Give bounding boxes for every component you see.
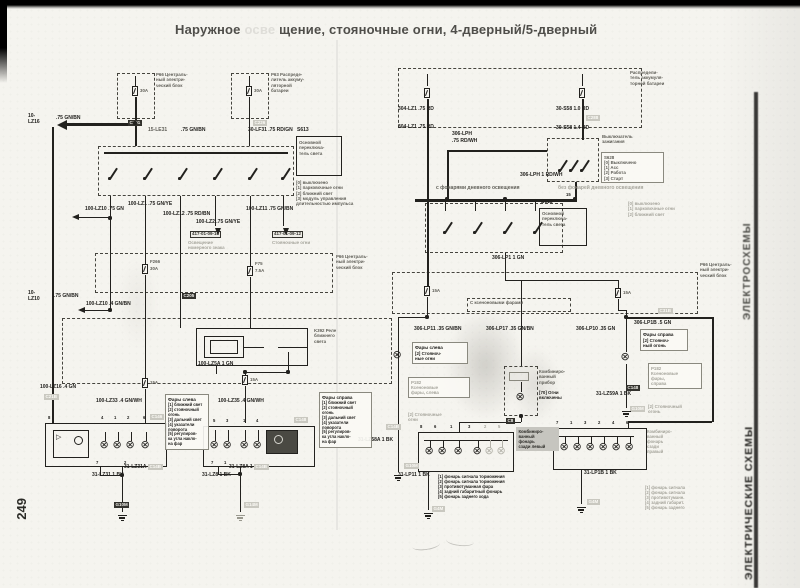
wire-label: с фонарями дневного освещения	[436, 186, 520, 191]
chapter-tab-label-top: ЭЛЕКТРОСХЕМЫ	[742, 140, 753, 320]
wire	[78, 217, 110, 218]
component-box	[210, 340, 238, 354]
wire-label: 100-LZ10 .75 GN	[85, 207, 124, 212]
wire-label: .75 GN/BN	[181, 128, 205, 133]
fuse-name-label: F75	[255, 262, 263, 266]
lamp-icon: ⊗	[223, 440, 232, 451]
wire-label: 306-LPH	[452, 132, 472, 137]
wire	[505, 272, 506, 280]
fuse-icon	[142, 378, 148, 388]
switch-icon	[139, 166, 151, 180]
legend-block: Фары слева[1] ближний свет[2] стояночный…	[165, 394, 209, 450]
wire-label: 6	[143, 416, 145, 420]
wire-label: 31-LP1B 1 BK	[584, 471, 617, 476]
wire-label: LZ10	[28, 297, 40, 302]
legend-block: Освещениеномерного знака	[188, 240, 244, 251]
switch-icon	[209, 166, 221, 180]
lamp-icon: ⊗	[454, 446, 463, 457]
legend-block: [2] Стояночныеогни	[408, 412, 464, 423]
fuse-amp-label: 15A	[250, 378, 258, 382]
wire	[427, 201, 429, 286]
lamp-icon: ⊗	[516, 392, 525, 403]
fuse-amp-label: 30A	[254, 89, 262, 93]
wire-label: 1	[243, 419, 245, 423]
legend-block: С ксеноновыми фарами	[470, 300, 570, 305]
fuse-name-label: F266	[150, 260, 160, 264]
junction-dot	[243, 370, 246, 373]
junction-dot	[238, 472, 241, 475]
wire-label: 100-LZ33 .4 GN/WH	[96, 399, 142, 404]
wire	[398, 317, 427, 318]
switch-icon	[499, 220, 511, 234]
wire-label: 5	[213, 419, 215, 423]
connector-tag: C31B	[658, 308, 673, 314]
wire	[250, 293, 251, 328]
wire	[245, 386, 246, 423]
legend-block: Комбиниро-ванныйфонарьсзадиправый	[647, 429, 695, 454]
junction-dot	[108, 308, 111, 311]
wire	[52, 127, 54, 376]
switch-icon	[174, 166, 186, 180]
wire-label: 100-LZ16 .4 GN	[40, 385, 76, 390]
wire	[618, 310, 626, 311]
wire	[447, 150, 449, 200]
wire	[216, 366, 217, 374]
arrow-icon	[215, 228, 221, 235]
wire-label: 100-LZ12 .75 RD/BN	[163, 212, 210, 217]
wire-label: 31-LP11 1 BK	[398, 473, 430, 478]
wire	[582, 74, 583, 86]
lamp-icon: ⊗	[425, 446, 434, 457]
legend-block: [70] Огнивключены	[539, 390, 591, 401]
lamp-icon: ⊗	[625, 442, 634, 453]
wire	[244, 347, 264, 348]
component-box	[509, 372, 529, 381]
legend-block: P182Ксеноновыефары, слева	[408, 377, 470, 398]
legend-block: P66 Централь-ный электри-ческий блок	[336, 254, 386, 270]
wire	[445, 199, 446, 211]
fuse-amp-label: 7.5A	[255, 269, 264, 273]
legend-block: Стояночные огни	[272, 240, 328, 245]
switch-icon	[469, 220, 481, 234]
junction-dot	[573, 197, 576, 200]
connector-tag: C205	[182, 293, 196, 299]
legend-block: Фары справа[1] ближний свет[2] стояночны…	[319, 392, 372, 448]
wire-label: 306-LPH 1 RD/WH	[520, 173, 563, 178]
ground-icon	[118, 514, 127, 521]
wire-label: 304-LZ1 .75 RD	[398, 125, 434, 130]
wire-label: S613	[541, 200, 553, 205]
component-box	[95, 253, 333, 293]
wire-label: 30-S58 1.4 RD	[556, 126, 589, 131]
wire	[278, 347, 308, 348]
wire	[447, 150, 547, 152]
wire	[521, 314, 522, 366]
wire-label: 3	[468, 425, 470, 429]
fuse-amp-label: 15A	[432, 289, 440, 293]
connector-tag: C226	[253, 120, 267, 126]
fuse-icon	[424, 286, 430, 296]
wire	[250, 277, 251, 293]
wire-label: 2	[127, 416, 129, 420]
ground-icon	[394, 474, 403, 481]
switch-icon	[244, 166, 256, 180]
legend-block: [0] выключено[1] парковочные огни[2] бли…	[296, 180, 372, 206]
wire-label: 306-LP1B .5 GN	[634, 321, 671, 326]
connector-tag: C14B	[386, 424, 401, 430]
wire	[626, 317, 712, 319]
wire-label: ▷	[56, 434, 61, 441]
wire-label: 100-LZ2 .75 GN/YE	[196, 220, 240, 225]
motor-icon	[274, 435, 283, 444]
wire-label: 6	[626, 421, 628, 425]
connector-tag: G10M	[630, 406, 645, 412]
chapter-tab-label-bottom: ЭЛЕКТРИЧЕСКИЕ СХЕМЫ	[743, 352, 755, 580]
manual-page-scan: Наружное осве щение, стояночные огни, 4-…	[0, 0, 800, 588]
connector-tag: C14B	[148, 464, 163, 470]
wire-label: 4	[612, 421, 614, 425]
lamp-icon: ⊗	[240, 440, 249, 451]
wire	[427, 74, 428, 86]
ground-icon	[424, 512, 433, 519]
legend-block: K392 Релеближнегосвета	[314, 328, 366, 344]
lamp-icon: ⊗	[560, 442, 569, 453]
wire	[535, 199, 536, 211]
legend-block: [2] Стояночныйогонь	[648, 404, 696, 415]
wire-label: .75 RD/WH	[452, 139, 477, 144]
legend-block: Основнойпереключа-тель света	[542, 211, 586, 227]
motor-icon	[74, 436, 83, 445]
wire-label: 3	[584, 421, 586, 425]
lamp-icon: ⊗	[473, 446, 482, 457]
lamp-icon: ⊗	[113, 440, 122, 451]
lamp-icon: ⊗	[393, 350, 402, 361]
connector-tag: G10M	[404, 463, 419, 469]
wire-label: 306-LP1 1 GN	[492, 256, 524, 261]
wire-label: 31-LZ59A 1 BK	[596, 392, 631, 397]
wire-label: 4	[256, 419, 258, 423]
wire	[505, 199, 506, 211]
wire-label: 100-LZ35 .4 GN/WH	[218, 399, 264, 404]
legend-block: S628[0] Выключено[1] Acc[2] Работа[3] Ст…	[601, 152, 664, 183]
lamp-icon: ⊗	[141, 440, 150, 451]
wire-label: 2	[598, 421, 600, 425]
connector-tag: C21B	[44, 394, 59, 400]
page-number: 249	[14, 498, 29, 520]
legend-block: Основнойпереключа-тель света	[299, 140, 341, 156]
lamp-icon: ⊗	[210, 440, 219, 451]
lamp-icon: ⊗	[612, 442, 621, 453]
switch-icon	[439, 220, 451, 234]
fuse-icon	[579, 88, 585, 98]
wire-label: 304-LZ1 .75 RD	[398, 107, 434, 112]
component-box	[231, 73, 269, 119]
wire-label: 306-LP17 .35 GN/BN	[486, 327, 534, 332]
wire	[180, 196, 181, 253]
wire	[110, 253, 111, 293]
legend-block: P182Ксеноновыефары,справа	[648, 363, 702, 389]
arrow-icon	[283, 228, 289, 235]
arrow-icon	[78, 307, 85, 313]
ground-icon	[236, 514, 245, 521]
wire-label: 4	[101, 416, 103, 420]
lamp-icon: ⊗	[621, 352, 630, 363]
wire-label: 8	[420, 425, 422, 429]
fuse-icon	[424, 88, 430, 98]
connector-tag: C14B	[254, 464, 269, 470]
wire	[145, 253, 146, 264]
switch-icon	[104, 166, 116, 180]
wire-label: 7	[96, 461, 98, 465]
wire	[180, 253, 181, 293]
junction-dot	[120, 473, 123, 476]
wire	[135, 76, 136, 86]
legend-block: Фары справа[2] Стояноч-ный огонь	[640, 329, 688, 351]
wire-label: 30-LF31 .75 RD/GN	[248, 128, 293, 133]
wire-label: 30-S58 1.0 RD	[556, 107, 589, 112]
wire-label: 100-LZ10 .4 GN/BN	[86, 302, 131, 307]
junction-dot	[624, 315, 627, 318]
wire	[618, 299, 619, 310]
wire-label: 306-LP10 .35 GN	[576, 327, 615, 332]
wire-label: 5	[498, 425, 500, 429]
wire	[618, 280, 619, 288]
wire	[250, 253, 251, 266]
junction-dot	[286, 370, 289, 373]
junction-dot	[425, 315, 428, 318]
legend-block: Комбиниро-ванныйприбор	[539, 369, 591, 385]
wire	[424, 440, 508, 441]
legend-block: Комбиниро-ванныйфонарьсзади левый	[516, 427, 559, 451]
wire	[245, 372, 288, 373]
fuse-icon	[246, 86, 252, 96]
wire-label: 2	[484, 425, 486, 429]
wire-label: 7	[211, 461, 213, 465]
wire	[427, 99, 429, 200]
fuse-amp-label: 15A	[623, 291, 631, 295]
wire	[249, 97, 250, 146]
legend-block: [1] фонарь сигнала торможения[2] фонарь …	[438, 474, 544, 499]
wire	[459, 422, 460, 432]
wire-label: .75 GN/BN	[54, 294, 78, 299]
legend-block: Выключательзажигания	[602, 134, 648, 145]
wire	[250, 196, 251, 253]
connector-tag: G4M	[432, 506, 445, 512]
legend-block: P66 Централь-ный электри-ческий блок	[156, 72, 202, 88]
junction-dot	[133, 121, 136, 124]
fuse-icon	[615, 288, 621, 298]
wire-label: S613	[297, 128, 309, 133]
lamp-icon: ⊗	[599, 442, 608, 453]
switch-icon	[277, 166, 289, 180]
component-box	[398, 68, 642, 128]
fuse-icon	[132, 86, 138, 96]
wire-label: 15	[566, 193, 571, 197]
wire-label: 31-LZ31 1 BK	[92, 473, 124, 478]
wire-label: 306-LP11 .35 GN/BN	[414, 327, 462, 332]
wire	[475, 199, 476, 211]
switch-icon	[576, 158, 588, 172]
lamp-icon: ⊗	[586, 442, 595, 453]
wire	[180, 293, 181, 328]
wire	[521, 280, 522, 314]
wire-label: 3	[226, 419, 228, 423]
wire-label: 1	[114, 416, 116, 420]
wire	[398, 317, 399, 472]
wire	[84, 310, 110, 311]
legend-block: Распредели-тель аккумуля-торной батареи	[630, 70, 682, 86]
lamp-icon: ⊗	[497, 446, 506, 457]
lamp-icon: ⊗	[573, 442, 582, 453]
wire	[558, 436, 634, 437]
junction-dot	[108, 216, 111, 219]
connector-tag: G14M	[244, 502, 259, 508]
wire	[104, 152, 288, 154]
wire-label: 1	[224, 461, 226, 465]
wire	[110, 196, 111, 253]
lamp-icon: ⊗	[438, 446, 447, 457]
wire-label: 100-LZ1 .75 GN/YE	[128, 202, 172, 207]
fuse-icon	[247, 266, 253, 276]
ground-icon	[577, 506, 586, 513]
arrow-icon	[57, 120, 67, 130]
wire-label: 7	[556, 421, 558, 425]
wire	[628, 421, 712, 423]
wire	[581, 470, 582, 504]
wiring-diagram: 10-LZ16.75 GN/BN15-LE31.75 GN/BN30-LF31 …	[0, 0, 800, 588]
wire	[145, 275, 146, 293]
legend-block: [1] фонарь сигнала[2] фонарь сигнала[3] …	[645, 485, 701, 510]
legend-block: P63 Распреде-литель аккуму-ляторнойбатар…	[271, 72, 325, 93]
wire	[712, 317, 714, 422]
lamp-icon: ⊗	[253, 440, 262, 451]
ground-icon	[622, 410, 631, 417]
wire-label: 100-LZ5A 1 GN	[198, 362, 233, 367]
connector-tag: C146	[150, 414, 164, 420]
legend-block: Фары слева[2] Стояноч-ные огни	[412, 342, 468, 364]
connector-tag: C8	[506, 418, 515, 424]
junction-dot	[445, 197, 448, 200]
connector-tag: G4M	[587, 499, 600, 505]
wire-label: 1	[570, 421, 572, 425]
wire	[288, 352, 289, 366]
connector-tag: C288	[586, 115, 600, 121]
wire	[145, 293, 146, 378]
junction-dot	[503, 197, 506, 200]
junction-dot	[519, 414, 522, 417]
wire-label: 8	[48, 416, 50, 420]
connector-tag: C148	[626, 385, 640, 391]
lamp-icon: ⊗	[485, 446, 494, 457]
legend-block: [0] выключено[1] парковочные огни[2] бли…	[628, 201, 690, 217]
wire	[62, 123, 135, 126]
wire-label: LZ16	[28, 120, 40, 125]
fuse-amp-label: 30A	[150, 267, 158, 271]
wire	[249, 76, 250, 86]
fuse-amp-label: 15A	[150, 381, 158, 385]
wire-label: без фонарей дневного освещения	[558, 186, 643, 191]
lamp-icon: ⊗	[126, 440, 135, 451]
wire-label: 31-LZ8 1 BK	[202, 473, 231, 478]
fuse-amp-label: 30A	[140, 89, 148, 93]
wire-label: 100-LZ11 .75 GN/BN	[246, 207, 293, 212]
fuse-icon	[242, 375, 248, 385]
fuse-icon	[142, 264, 148, 274]
wire-label: 6	[434, 425, 436, 429]
connector-tag: C148	[294, 417, 308, 423]
wire-label: 1	[450, 425, 452, 429]
lamp-icon: ⊗	[100, 440, 109, 451]
switch-icon	[529, 220, 541, 234]
wire-label: 15-LE31	[148, 128, 167, 133]
arrow-icon	[72, 214, 79, 220]
connector-tag: G10M	[114, 502, 129, 508]
